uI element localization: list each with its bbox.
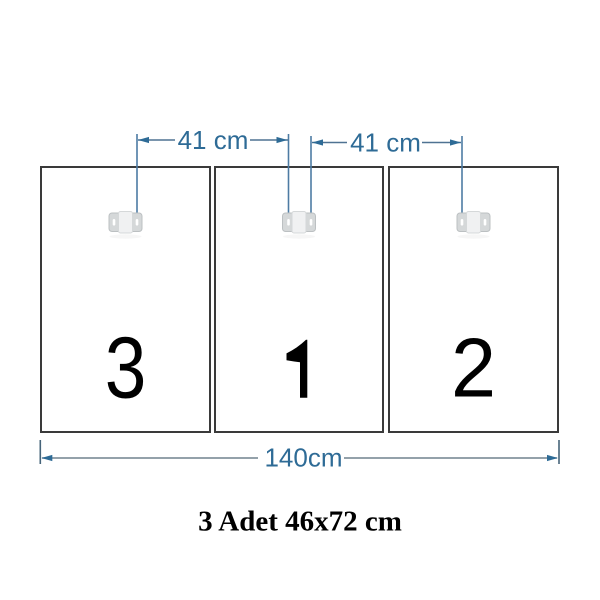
svg-text:41 cm: 41 cm <box>178 125 249 155</box>
svg-text:2: 2 <box>451 322 496 414</box>
svg-text:3: 3 <box>105 320 147 417</box>
svg-text:140cm: 140cm <box>264 443 342 473</box>
svg-text:3 Adet 46x72 cm: 3 Adet 46x72 cm <box>198 506 402 538</box>
svg-text:41 cm: 41 cm <box>350 128 421 158</box>
